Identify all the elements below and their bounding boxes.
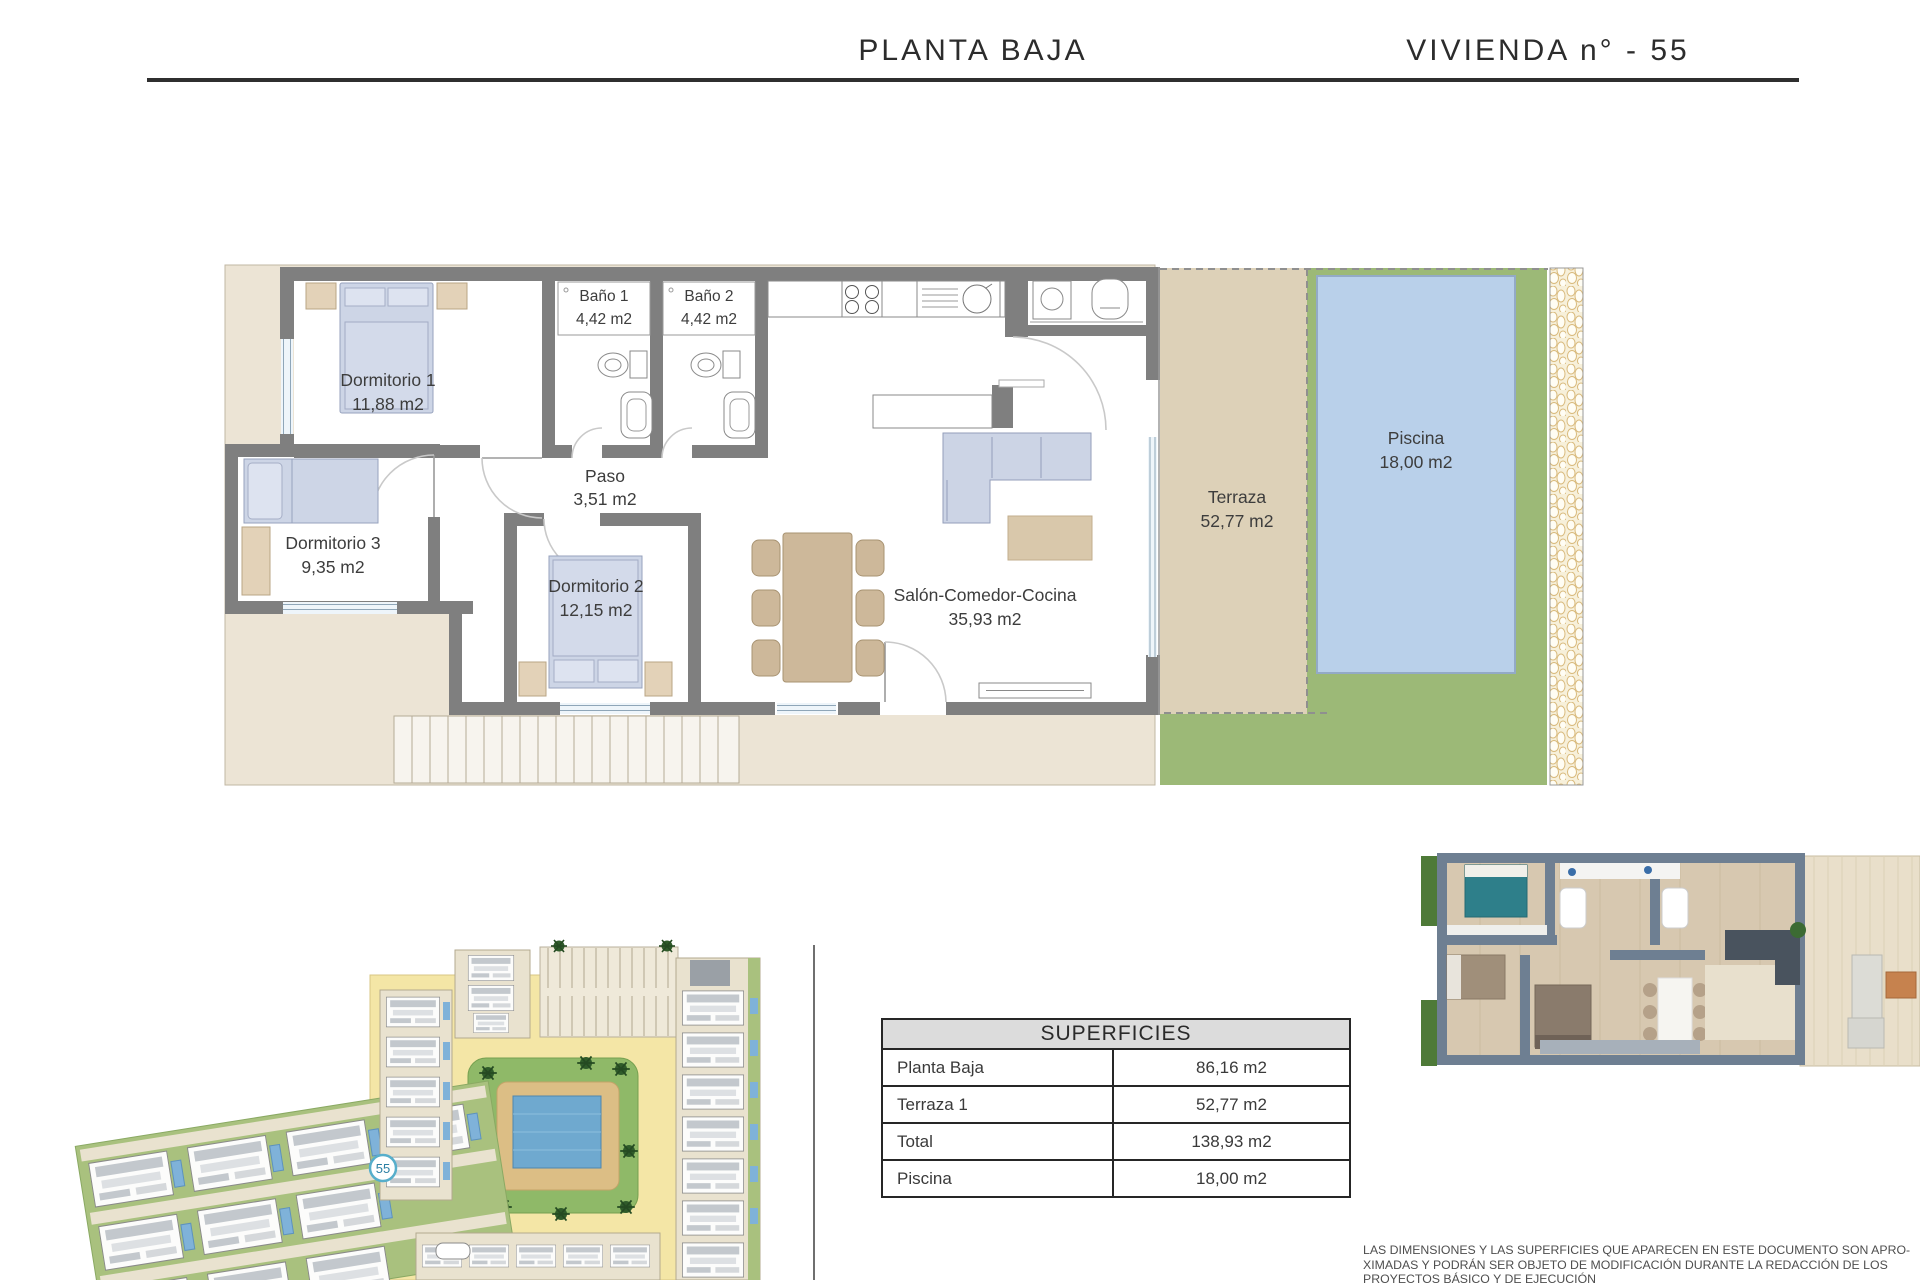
room-label-dormitorio3: Dormitorio 3 (285, 533, 380, 553)
table-row: Total 138,93 m2 (883, 1124, 1349, 1161)
room-label-terraza: Terraza (1208, 487, 1267, 507)
table-row: Piscina 18,00 m2 (883, 1161, 1349, 1196)
disclaimer: LAS DIMENSIONES Y LAS SUPERFICIES QUE AP… (1363, 1243, 1911, 1287)
room-label-salon: Salón-Comedor-Cocina (894, 585, 1077, 605)
housing-cluster-top (455, 950, 530, 1038)
row-value: 52,77 m2 (1112, 1087, 1349, 1122)
room-area-terraza: 52,77 m2 (1201, 511, 1274, 531)
surfaces-table: SUPERFICIES Planta Baja 86,16 m2 Terraza… (881, 1018, 1351, 1198)
render-3d (1421, 853, 1920, 1066)
row-value: 18,00 m2 (1112, 1161, 1349, 1196)
render-grass-top (1421, 856, 1437, 926)
unit-55-marker: 55 (370, 1155, 396, 1181)
deck-stripes (394, 716, 739, 783)
room-area-dormitorio3: 9,35 m2 (301, 557, 364, 577)
room-area-paso: 3,51 m2 (573, 489, 636, 509)
room-area-piscina: 18,00 m2 (1380, 452, 1453, 472)
room-area-bano2: 4,42 m2 (681, 311, 737, 328)
parking-lot (540, 940, 678, 1037)
row-label: Total (883, 1124, 1112, 1159)
room-label-piscina: Piscina (1388, 428, 1445, 448)
site-plan: 55 (75, 940, 760, 1280)
floor-plan: Dormitorio 1 11,88 m2 Baño 1 4,42 m2 Bañ… (225, 265, 1583, 785)
room-label-dormitorio1: Dormitorio 1 (340, 370, 435, 390)
room-area-dormitorio1: 11,88 m2 (352, 394, 424, 414)
section-divider (813, 945, 815, 1280)
row-value: 138,93 m2 (1112, 1124, 1349, 1159)
room-label-paso: Paso (585, 466, 625, 486)
room-area-salon: 35,93 m2 (949, 609, 1022, 629)
disclaimer-line: PROYECTOS BÁSICO Y DE EJECUCIÓN (1363, 1272, 1911, 1287)
table-row: Terraza 1 52,77 m2 (883, 1087, 1349, 1124)
room-label-bano2: Baño 2 (684, 288, 733, 305)
surfaces-table-title: SUPERFICIES (883, 1020, 1349, 1050)
pool (1317, 276, 1515, 673)
disclaimer-line: XIMADAS Y PODRÁN SER OBJETO DE MODIFICAC… (1363, 1258, 1911, 1273)
row-label: Planta Baja (883, 1050, 1112, 1085)
room-area-bano1: 4,42 m2 (576, 311, 632, 328)
room-area-dormitorio2: 12,15 m2 (560, 600, 633, 620)
unit-55-label: 55 (376, 1161, 390, 1176)
room-label-bano1: Baño 1 (579, 288, 628, 305)
row-label: Terraza 1 (883, 1087, 1112, 1122)
gravel-strip (1550, 268, 1583, 785)
disclaimer-line: LAS DIMENSIONES Y LAS SUPERFICIES QUE AP… (1363, 1243, 1911, 1258)
car-icon (436, 1243, 470, 1259)
room-label-dormitorio2: Dormitorio 2 (548, 576, 643, 596)
table-row: Planta Baja 86,16 m2 (883, 1050, 1349, 1087)
housing-column-right (676, 958, 760, 1280)
row-label: Piscina (883, 1161, 1112, 1196)
render-grass-bottom (1421, 1000, 1437, 1066)
row-value: 86,16 m2 (1112, 1050, 1349, 1085)
